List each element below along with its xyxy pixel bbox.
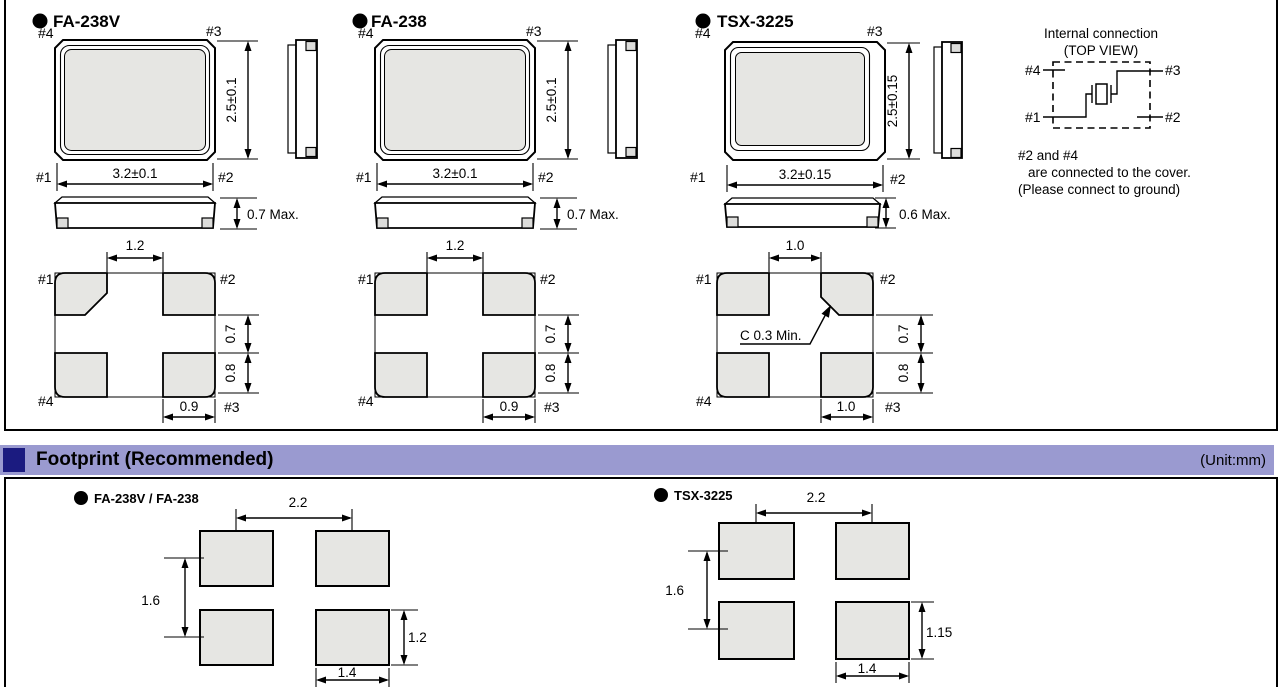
pin-label-4: #4	[1025, 62, 1041, 78]
profile-view	[55, 197, 215, 228]
dim-pad-width: 0.9	[483, 399, 535, 423]
dim-text-pad-gap: 1.2	[446, 238, 465, 253]
footprint-name: FA-238V / FA-238	[94, 491, 199, 506]
pin-label-4: #4	[695, 25, 711, 41]
pin-label-1: #1	[38, 271, 54, 287]
pin-label-3: #3	[867, 23, 883, 39]
footprint-fa-238v-fa-238: FA-238V / FA-238 2.2 1.6	[60, 485, 500, 687]
pin-label-2: #2	[1165, 109, 1181, 125]
side-view	[934, 42, 962, 158]
dim-pad-height: 1.15	[911, 602, 952, 659]
pad	[719, 602, 794, 659]
dim-thickness: 0.7 Max.	[220, 198, 299, 229]
section-marker-icon	[3, 448, 25, 472]
dim-text-body-width: 3.2±0.15	[779, 167, 831, 182]
dim-body-height: 2.5±0.1	[537, 41, 578, 159]
dim-pitch-x: 2.2	[236, 495, 352, 531]
chamfer-note: C 0.3 Min.	[740, 328, 802, 343]
dim-text-pitch-x: 2.2	[289, 495, 308, 510]
footprint-title: TSX-3225	[654, 488, 733, 503]
dim-text-body-width: 3.2±0.1	[113, 166, 158, 181]
footprint-name: TSX-3225	[674, 488, 733, 503]
pin-label-3: #3	[544, 399, 560, 415]
dim-text-pad-height: 0.8	[896, 364, 911, 383]
pad	[836, 523, 909, 579]
pin-label-3: #3	[1165, 62, 1181, 78]
dim-pad-height: 1.2	[391, 610, 427, 665]
pad-3	[821, 353, 873, 397]
dim-text-pad-height: 1.15	[926, 625, 952, 640]
pin-label-2: #2	[540, 271, 556, 287]
dim-pad-gap: 1.2	[107, 238, 163, 272]
footprint-pads	[719, 523, 909, 659]
footprint-title: FA-238V / FA-238	[74, 491, 199, 506]
dim-text-pad-offset: 0.7	[543, 325, 558, 344]
dim-pad-width: 1.0	[821, 399, 873, 423]
cover-note-line2: are connected to the cover.	[1028, 165, 1191, 180]
dim-text-pitch-y: 1.6	[141, 593, 160, 608]
top-view	[375, 40, 535, 160]
dim-text-pad-offset: 0.7	[223, 325, 238, 344]
datasheet-page: FA-238V #4 #3 #1 #2 2.5±0.1 3.2±0.1	[0, 0, 1281, 687]
dim-pitch-y: 1.6	[141, 558, 204, 637]
pad-4	[375, 353, 427, 397]
dim-pad-gap: 1.0	[769, 238, 821, 272]
pin-label-2: #2	[538, 169, 554, 185]
pin-label-2: #2	[880, 271, 896, 287]
pin-label-4: #4	[38, 393, 54, 409]
pad-4	[717, 353, 769, 397]
dim-text-pad-width: 1.0	[837, 399, 856, 414]
pad-3	[483, 353, 535, 397]
drawing-fa-238v: FA-238V #4 #3 #1 #2 2.5±0.1 3.2±0.1	[10, 0, 330, 432]
pad	[316, 610, 389, 665]
dim-body-width: 3.2±0.1	[57, 163, 213, 191]
dim-pad-offset-height: 0.7 0.8	[538, 315, 579, 393]
pin-label-1: #1	[1025, 109, 1041, 125]
pad	[836, 602, 909, 659]
unit-label: (Unit:mm)	[1200, 452, 1266, 469]
pin-label-3: #3	[885, 399, 901, 415]
dim-text-body-width: 3.2±0.1	[433, 166, 478, 181]
pad-view	[55, 273, 215, 397]
dim-pad-width: 1.4	[316, 665, 389, 687]
dim-text-pad-gap: 1.2	[126, 238, 145, 253]
crystal-circuit	[1043, 70, 1163, 117]
pin-label-2: #2	[220, 271, 236, 287]
pad	[200, 610, 273, 665]
dim-text-thickness: 0.7 Max.	[567, 207, 619, 222]
pin-label-4: #4	[358, 393, 374, 409]
dim-pad-width: 0.9	[163, 399, 215, 423]
pin-label-1: #1	[36, 169, 52, 185]
dim-text-thickness: 0.6 Max.	[899, 207, 951, 222]
top-view	[725, 42, 885, 160]
pad	[316, 531, 389, 586]
dim-text-pad-width: 0.9	[180, 399, 199, 414]
dim-text-pad-width: 0.9	[500, 399, 519, 414]
pin-label-1: #1	[358, 271, 374, 287]
dim-thickness: 0.6 Max.	[875, 198, 951, 228]
section-header-band: Footprint (Recommended) (Unit:mm)	[0, 445, 1274, 475]
cover-note-line1: #2 and #4	[1018, 148, 1079, 163]
dim-text-pad-offset: 0.7	[896, 325, 911, 344]
pin-label-1: #1	[696, 271, 712, 287]
pad-4	[55, 353, 107, 397]
footprint-tsx-3225: TSX-3225 2.2 1.6	[640, 485, 1080, 687]
drawing-tsx-3225: TSX-3225 #4 #3 #1 #2 2.5±0.15 3.2±0.15	[640, 0, 985, 432]
dim-text-body-height: 2.5±0.1	[224, 78, 239, 123]
dim-text-pitch-x: 2.2	[807, 490, 826, 505]
internal-connection-diagram: Internal connection (TOP VIEW) #4 #3 #1 …	[985, 0, 1281, 235]
bullet-icon	[74, 491, 88, 505]
dim-thickness: 0.7 Max.	[540, 198, 619, 229]
pad-1	[717, 273, 769, 315]
pin-label-3: #3	[224, 399, 240, 415]
pin-label-1: #1	[690, 169, 706, 185]
drawing-fa-238: FA-238 #4 #3 #1 #2 2.5±0.1 3.2±0.1	[330, 0, 650, 432]
pin-label-3: #3	[206, 23, 222, 39]
pad-3	[163, 353, 215, 397]
internal-connection-subtitle: (TOP VIEW)	[1064, 43, 1139, 58]
dim-text-pad-width: 1.4	[338, 665, 357, 680]
dim-text-pad-width: 1.4	[858, 661, 877, 676]
dim-pad-gap: 1.2	[427, 238, 483, 272]
dim-text-pitch-y: 1.6	[665, 583, 684, 598]
pad-view	[375, 273, 535, 397]
pad-2	[483, 273, 535, 315]
side-view	[608, 40, 637, 158]
pad	[200, 531, 273, 586]
internal-connection-title: Internal connection	[1044, 26, 1158, 41]
profile-view	[725, 198, 880, 227]
cover-note-line3: (Please connect to ground)	[1018, 182, 1180, 197]
dim-text-pad-height: 1.2	[408, 630, 427, 645]
pin-label-3: #3	[526, 23, 542, 39]
dim-text-pad-gap: 1.0	[786, 238, 805, 253]
pad-2	[163, 273, 215, 315]
dim-text-body-height: 2.5±0.1	[544, 78, 559, 123]
pad-1	[55, 273, 107, 315]
dim-text-pad-height: 0.8	[223, 364, 238, 383]
section-title: Footprint (Recommended)	[36, 449, 274, 471]
top-view	[55, 40, 215, 160]
dim-pad-offset-height: 0.7 0.8	[876, 315, 933, 393]
dim-pad-offset-height: 0.7 0.8	[218, 315, 259, 393]
pin-label-4: #4	[696, 393, 712, 409]
dim-text-body-height: 2.5±0.15	[885, 75, 900, 127]
pin-label-4: #4	[358, 25, 374, 41]
pin-label-1: #1	[356, 169, 372, 185]
dim-pad-width: 1.4	[836, 661, 909, 683]
pin-label-4: #4	[38, 25, 54, 41]
dim-body-height: 2.5±0.15	[885, 43, 920, 159]
pin-label-2: #2	[890, 171, 906, 187]
bullet-icon	[654, 488, 668, 502]
pad	[719, 523, 794, 579]
package-name: TSX-3225	[717, 12, 794, 31]
dim-text-pad-height: 0.8	[543, 364, 558, 383]
dim-pitch-x: 2.2	[756, 490, 872, 523]
side-view	[288, 40, 317, 158]
profile-view	[375, 197, 535, 228]
dim-body-width: 3.2±0.15	[727, 165, 883, 192]
dim-text-thickness: 0.7 Max.	[247, 207, 299, 222]
package-name: FA-238	[371, 12, 427, 31]
package-name: FA-238V	[53, 12, 121, 31]
pin-label-2: #2	[218, 169, 234, 185]
pad-1	[375, 273, 427, 315]
dim-body-width: 3.2±0.1	[377, 163, 533, 191]
dim-body-height: 2.5±0.1	[217, 41, 258, 159]
footprint-pads	[200, 531, 389, 665]
